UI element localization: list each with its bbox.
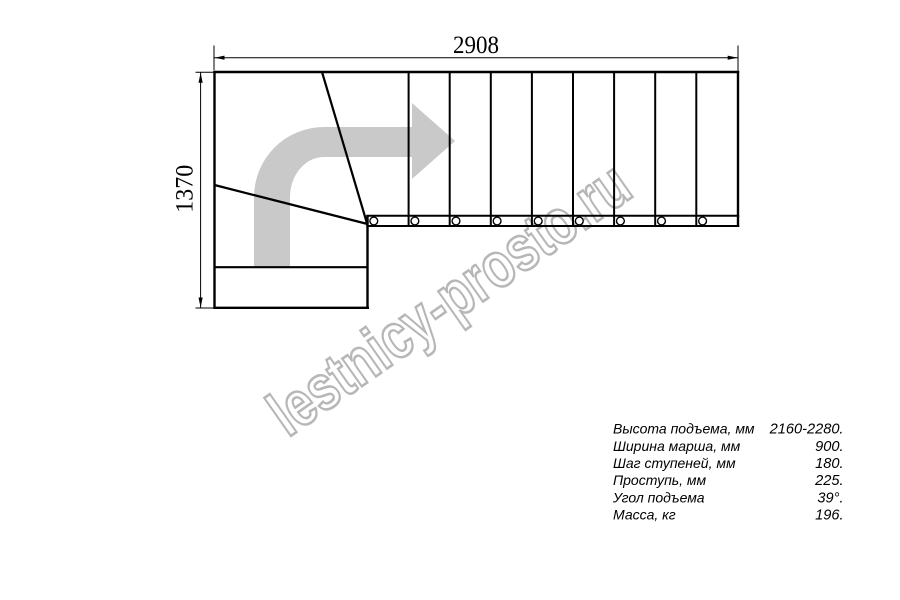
svg-text:225.: 225.: [814, 473, 843, 489]
svg-text:Шаг ступеней, мм: Шаг ступеней, мм: [613, 455, 736, 471]
svg-text:1370: 1370: [172, 165, 199, 213]
svg-text:Угол подъема: Угол подъема: [612, 490, 705, 506]
svg-text:Высота подъема, мм: Высота подъема, мм: [613, 421, 755, 437]
svg-text:Масса, кг: Масса, кг: [613, 507, 676, 523]
svg-text:2160-2280.: 2160-2280.: [769, 422, 844, 438]
svg-text:39°.: 39°.: [817, 491, 843, 507]
svg-text:900.: 900.: [815, 439, 843, 455]
svg-text:180.: 180.: [815, 456, 843, 472]
svg-text:2908: 2908: [453, 32, 499, 59]
svg-text:Ширина марша, мм: Ширина марша, мм: [613, 438, 741, 454]
svg-text:196.: 196.: [815, 508, 843, 524]
svg-text:Проступь, мм: Проступь, мм: [613, 472, 707, 488]
